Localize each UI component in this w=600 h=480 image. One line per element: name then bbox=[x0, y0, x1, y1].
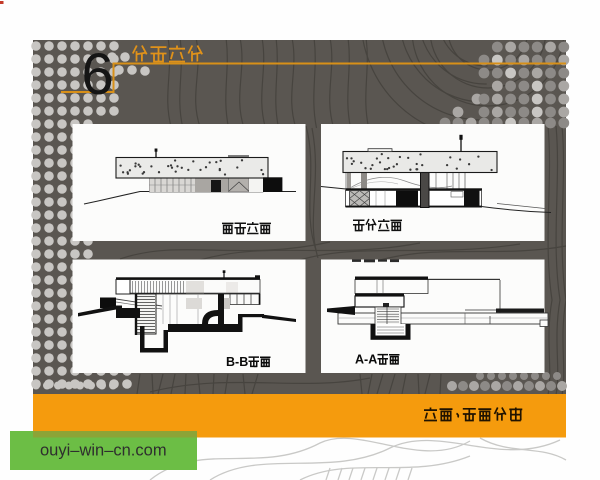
svg-text:6: 6 bbox=[81, 42, 113, 107]
svg-text:ouyi–win–cn.com: ouyi–win–cn.com bbox=[40, 442, 167, 460]
svg-text:A-A: A-A bbox=[355, 353, 377, 367]
svg-text:B-B: B-B bbox=[226, 355, 248, 369]
